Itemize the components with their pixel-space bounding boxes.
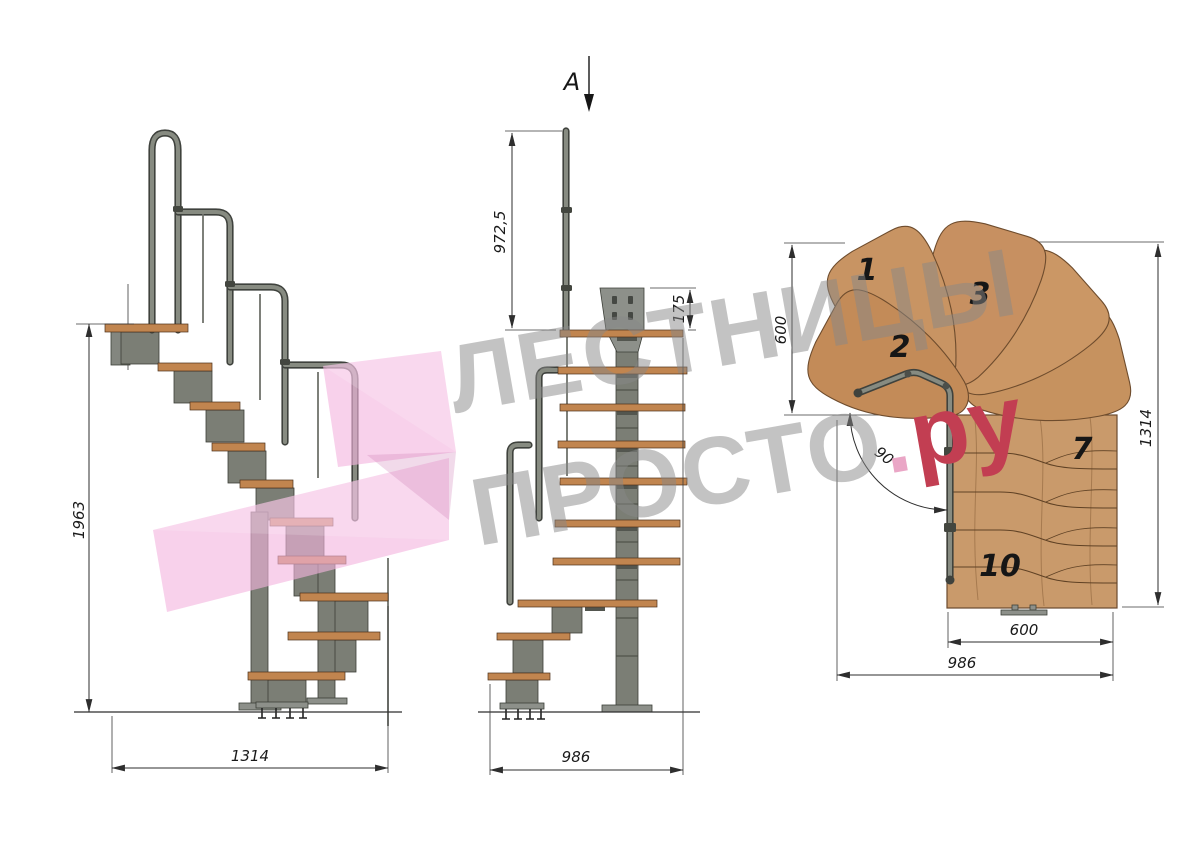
total-length-dim: 1314 [1137, 409, 1155, 447]
post-height-dim: 972,5 [491, 211, 509, 254]
column-base-plate [602, 705, 652, 712]
drawing-canvas: 1963 1314 A [0, 0, 1200, 849]
staircase-drawing: 1963 1314 A [0, 0, 1200, 849]
watermark-suffix: ру [901, 364, 1033, 489]
side-width-dim: 1314 [231, 747, 269, 765]
step-number-7: 7 [1072, 432, 1093, 467]
hairpin-handrail [152, 133, 178, 330]
side-height-dim: 1963 [70, 501, 88, 539]
column-base-plate [307, 698, 347, 704]
handrail-segment [178, 212, 230, 362]
flight-width-dim: 600 [1010, 621, 1039, 639]
front-width-dim: 986 [562, 748, 591, 766]
module-base-plate [500, 703, 544, 709]
step-number-10: 10 [979, 549, 1021, 584]
overall-width-dim: 986 [948, 654, 977, 672]
section-arrow-icon [584, 94, 594, 112]
module-base-plate [256, 702, 308, 708]
anchor-bolts [502, 709, 545, 719]
handrail-end-cap [946, 576, 955, 585]
section-mark-label: A [562, 68, 580, 96]
